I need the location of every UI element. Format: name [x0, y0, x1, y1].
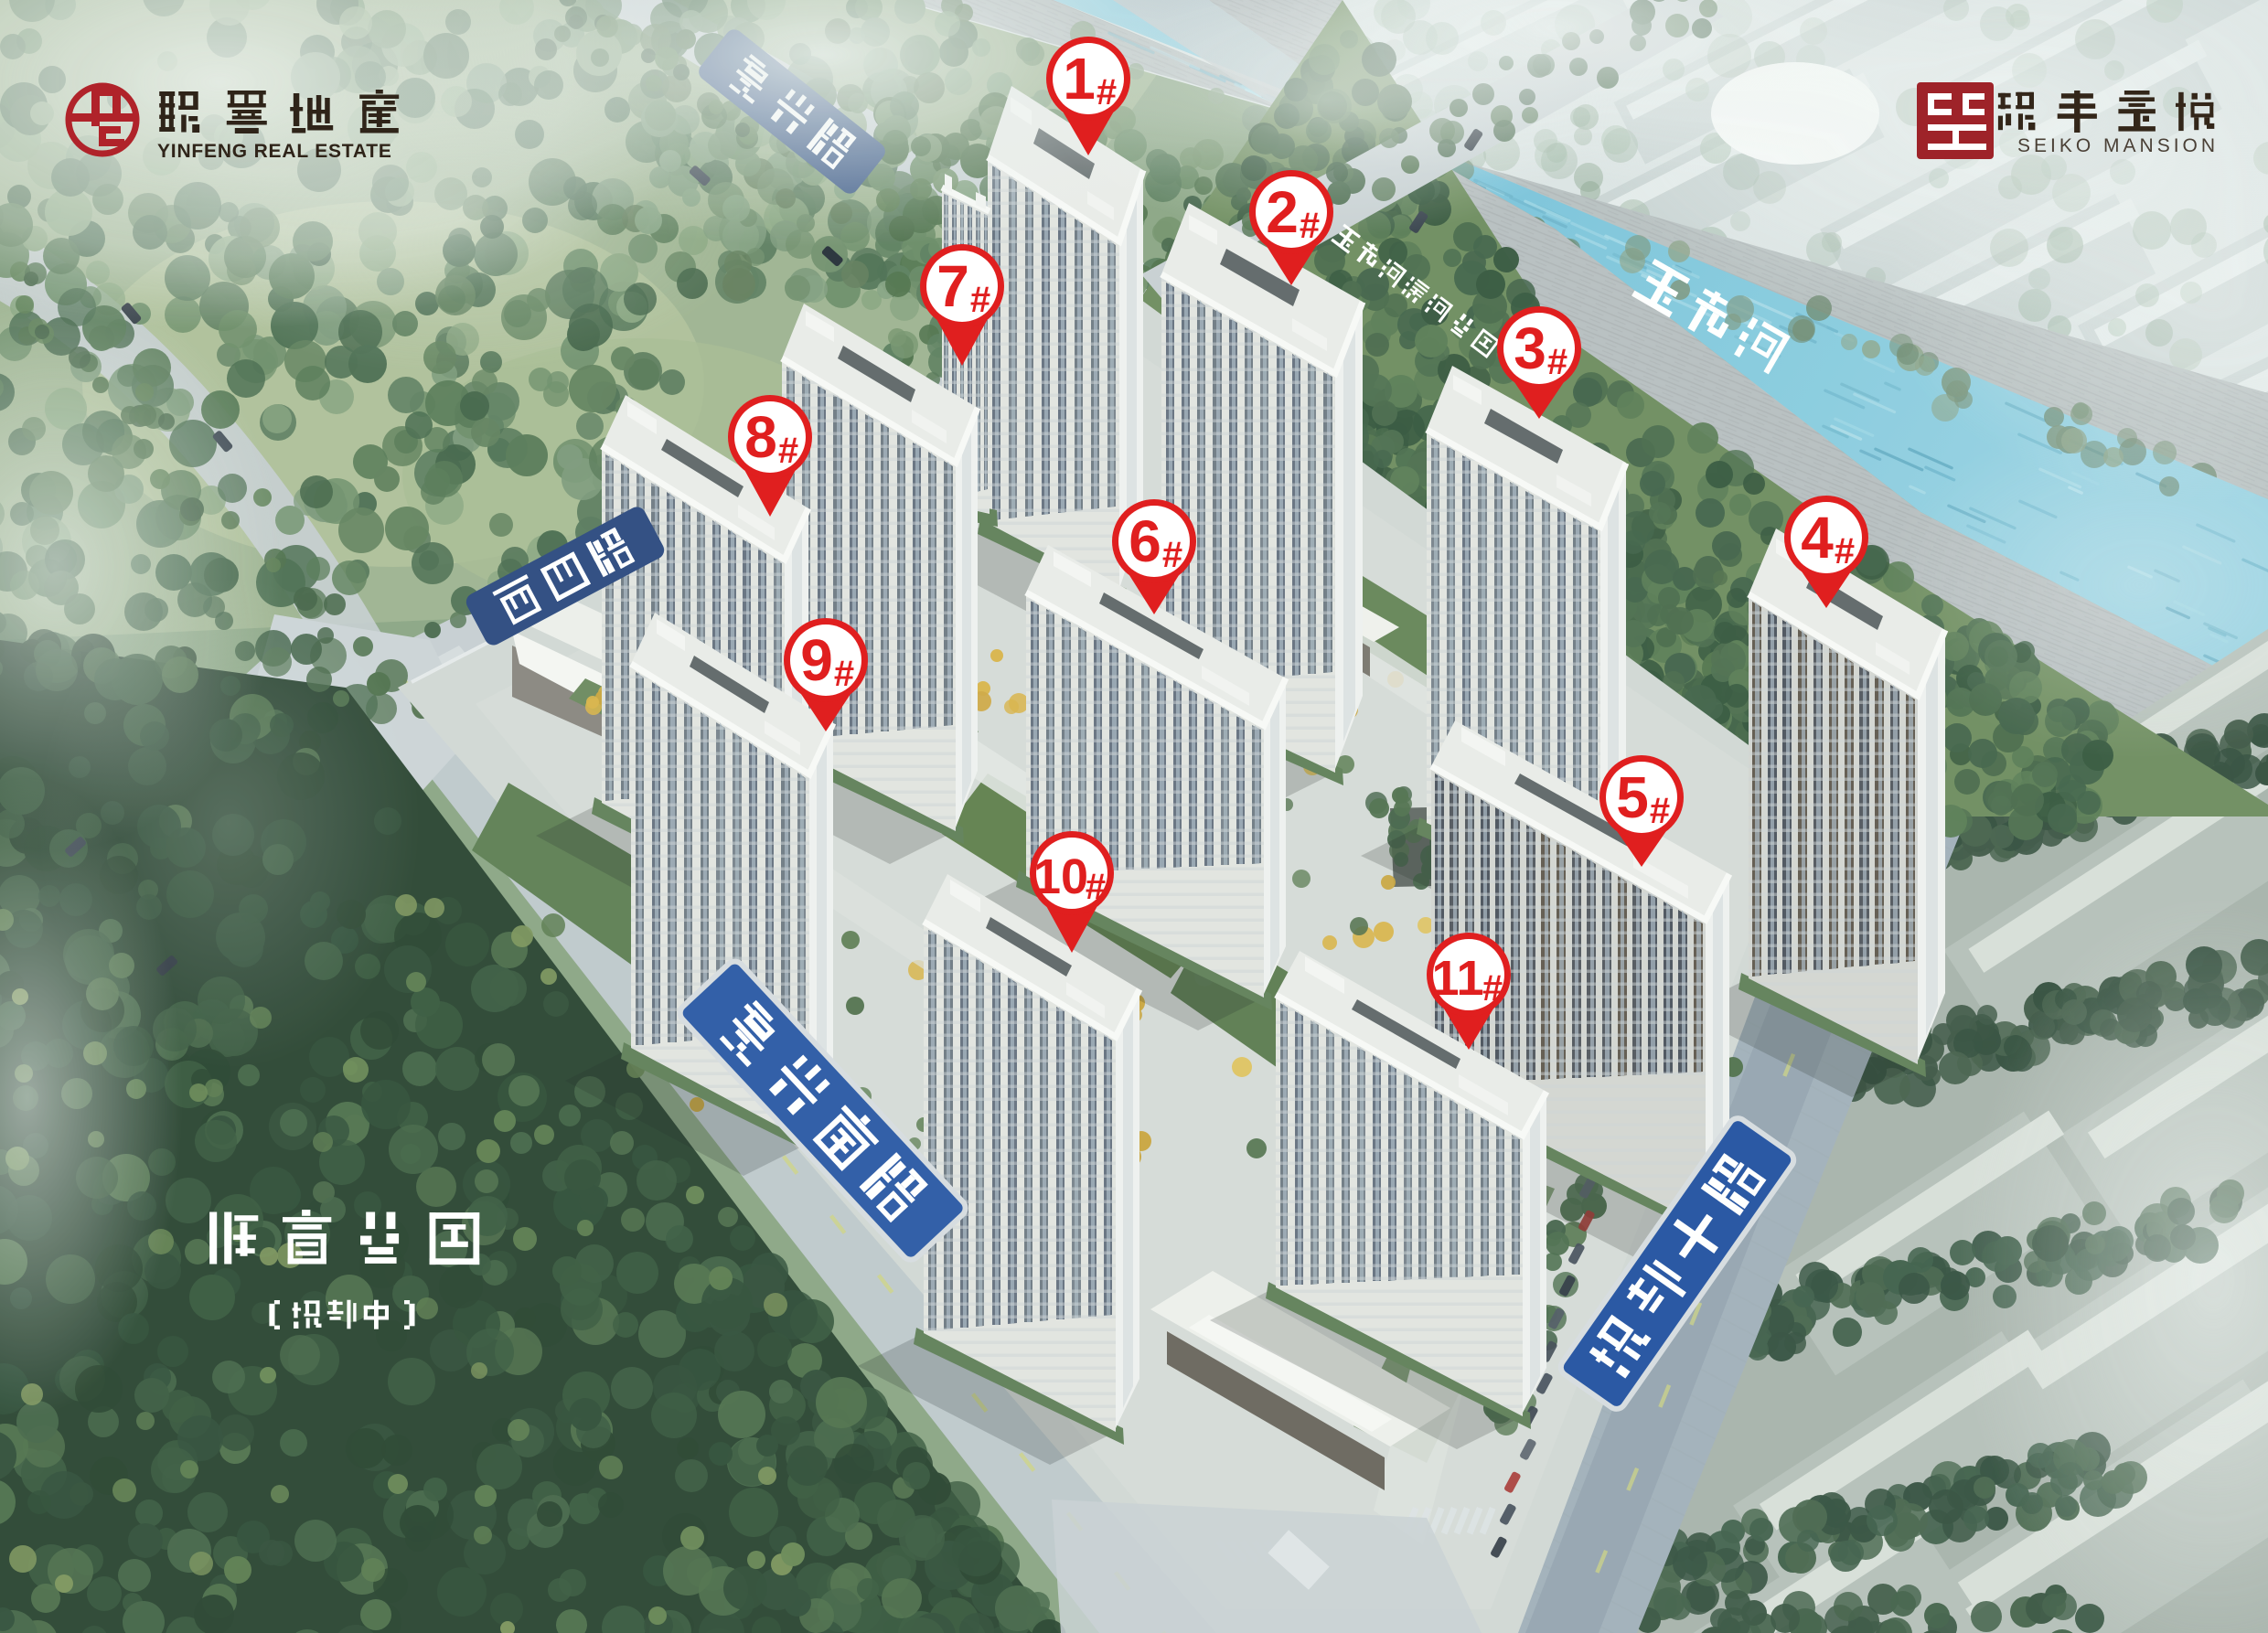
svg-text:SEIKO MANSION: SEIKO MANSION	[2017, 135, 2219, 156]
svg-text:8: 8	[744, 404, 777, 470]
svg-text:5: 5	[1616, 764, 1649, 830]
svg-text:1: 1	[1063, 46, 1096, 112]
svg-text:#: #	[778, 431, 798, 471]
svg-text:#: #	[1547, 342, 1567, 382]
svg-text:7: 7	[936, 253, 969, 319]
svg-text:#: #	[1097, 72, 1117, 112]
svg-text:#: #	[834, 654, 854, 694]
svg-text:10: 10	[1033, 849, 1088, 904]
svg-text:YINFENG REAL ESTATE: YINFENG REAL ESTATE	[157, 141, 392, 162]
svg-text:3: 3	[1514, 315, 1546, 381]
svg-text:#: #	[1835, 531, 1855, 571]
svg-text:6: 6	[1129, 508, 1161, 574]
svg-text:2: 2	[1266, 179, 1299, 245]
svg-text:#: #	[1162, 535, 1182, 575]
svg-text:4: 4	[1801, 505, 1834, 571]
svg-text:#: #	[1300, 206, 1320, 246]
svg-text:11: 11	[1431, 951, 1483, 1006]
svg-text:9: 9	[800, 627, 833, 693]
svg-text:#: #	[970, 280, 990, 320]
svg-text:#: #	[1650, 791, 1670, 831]
svg-text:#: #	[1482, 968, 1503, 1009]
svg-text:#: #	[1086, 867, 1106, 907]
